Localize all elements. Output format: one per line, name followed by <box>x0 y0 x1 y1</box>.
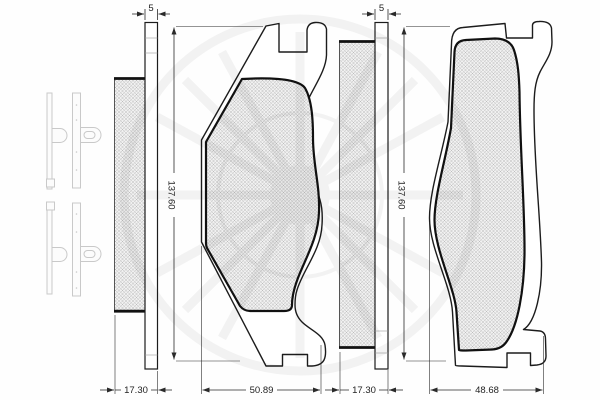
clip-strip <box>47 202 52 294</box>
shim-strip <box>73 93 81 188</box>
clip-foot <box>47 179 55 187</box>
dim-label-plate-thickness-left: 5 <box>148 3 153 14</box>
clip-foot <box>47 202 55 210</box>
technical-drawing-page: 5 5 137.60 137.60 17.30 50.89 17.30 48.6… <box>0 0 600 400</box>
dim-depth-left <box>100 315 172 394</box>
clip-tab <box>52 129 67 143</box>
dim-label-plate-thickness-right: 5 <box>379 3 384 14</box>
brake-pad-drawing: 5 5 137.60 137.60 17.30 50.89 17.30 48.6… <box>0 0 600 400</box>
dim-label-depth-left: 17.30 <box>124 385 148 396</box>
dim-label-width-left: 50.89 <box>250 385 274 396</box>
shim-strip <box>73 203 81 296</box>
brand-watermark <box>124 19 476 371</box>
clip-tab <box>52 248 67 262</box>
dim-label-depth-right: 17.30 <box>352 385 376 396</box>
accessory-clips <box>47 93 102 296</box>
dim-label-width-right: 48.68 <box>475 385 499 396</box>
clip-strip <box>47 93 52 189</box>
